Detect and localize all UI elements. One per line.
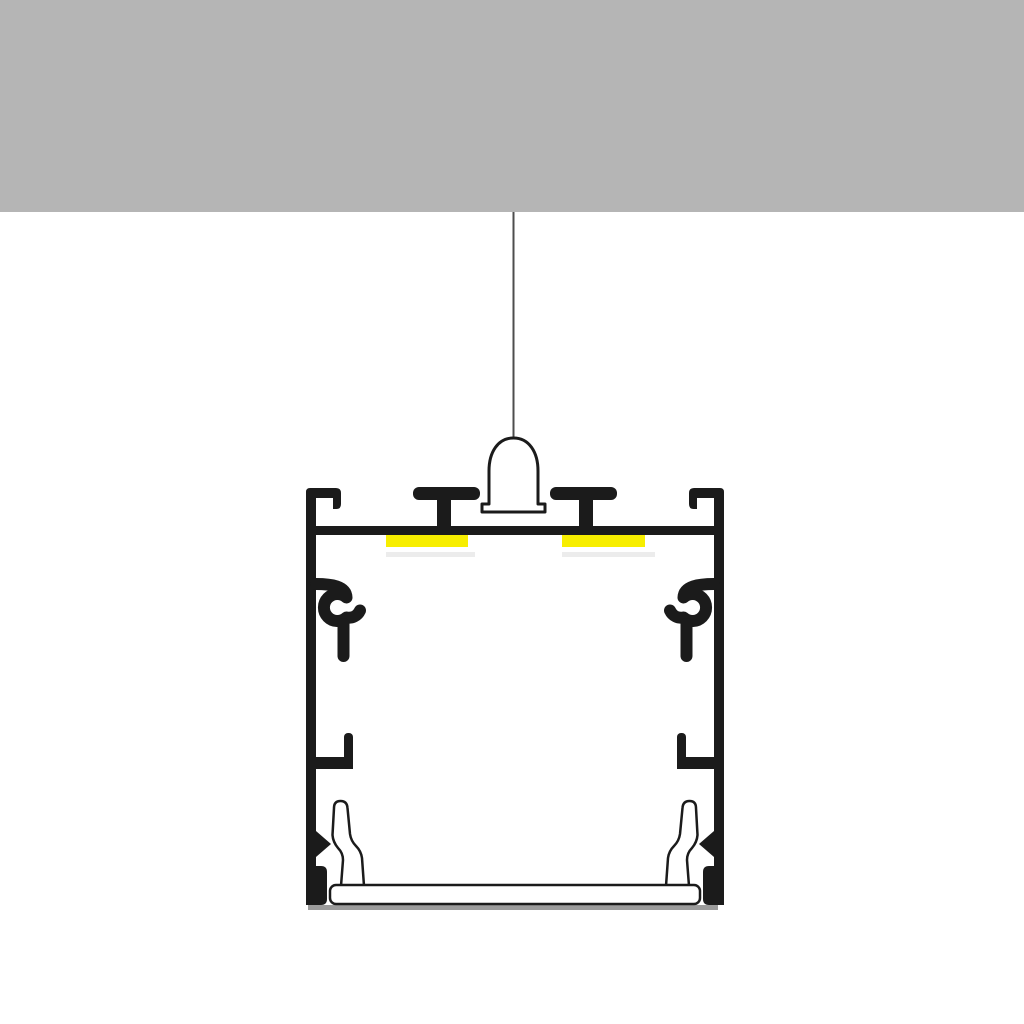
wall-left	[306, 496, 316, 905]
profile-housing	[306, 487, 724, 905]
diffuser-clip-arm-right	[666, 801, 698, 886]
led-glow-left	[386, 552, 475, 557]
led-glows	[386, 552, 655, 557]
side-clip-right	[670, 584, 714, 621]
led-strip-right	[562, 535, 645, 547]
inner-hook-tab-left	[344, 733, 353, 769]
side-clip-left	[316, 584, 360, 621]
wall-right	[714, 496, 724, 905]
ceiling	[0, 0, 1024, 212]
side-clips	[316, 584, 714, 656]
foot-right	[703, 866, 714, 905]
led-strip-left	[386, 535, 468, 547]
diffuser-plate	[330, 885, 700, 904]
drop-shadow	[308, 905, 718, 910]
retaining-tooth-right	[699, 831, 714, 857]
foot-left	[316, 866, 327, 905]
diffuser-clip-arm-left	[333, 801, 365, 886]
top-plate	[306, 526, 724, 535]
led-strips	[386, 535, 645, 547]
t-rib-stem-right	[579, 496, 593, 528]
diagram-stage	[0, 0, 1024, 1024]
led-glow-right	[562, 552, 655, 557]
profile-cross-section-diagram	[0, 0, 1024, 1024]
retaining-tooth-left	[316, 831, 331, 857]
diffuser-cover	[330, 801, 700, 904]
suspension-mount	[482, 438, 545, 512]
t-rib-stem-left	[437, 496, 451, 528]
inner-hook-tab-right	[677, 733, 686, 769]
suspension-mount-body	[482, 438, 545, 512]
